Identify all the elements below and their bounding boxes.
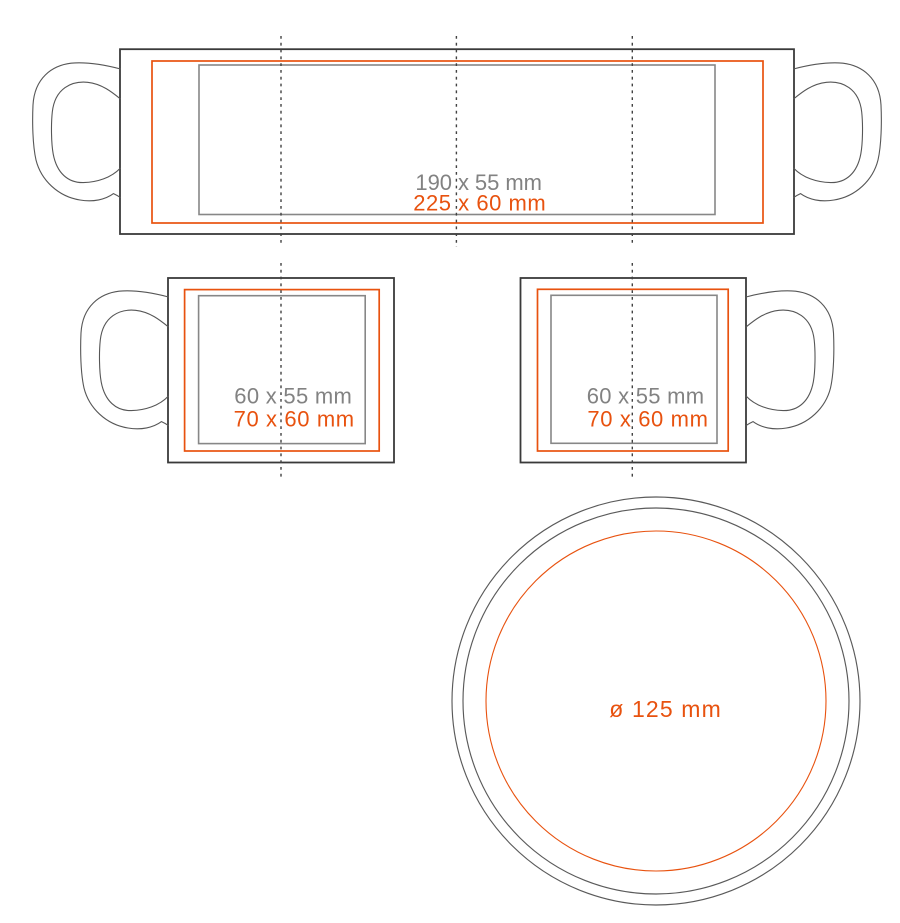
svg-text:70 x 60 mm: 70 x 60 mm: [234, 407, 355, 432]
svg-text:60 x 55 mm: 60 x 55 mm: [587, 383, 704, 408]
svg-text:60 x 55 mm: 60 x 55 mm: [234, 384, 351, 409]
svg-text:70 x 60 mm: 70 x 60 mm: [587, 406, 708, 431]
svg-text:225 x 60 mm: 225 x 60 mm: [413, 190, 546, 215]
svg-text:ø 125 mm: ø 125 mm: [609, 696, 721, 722]
